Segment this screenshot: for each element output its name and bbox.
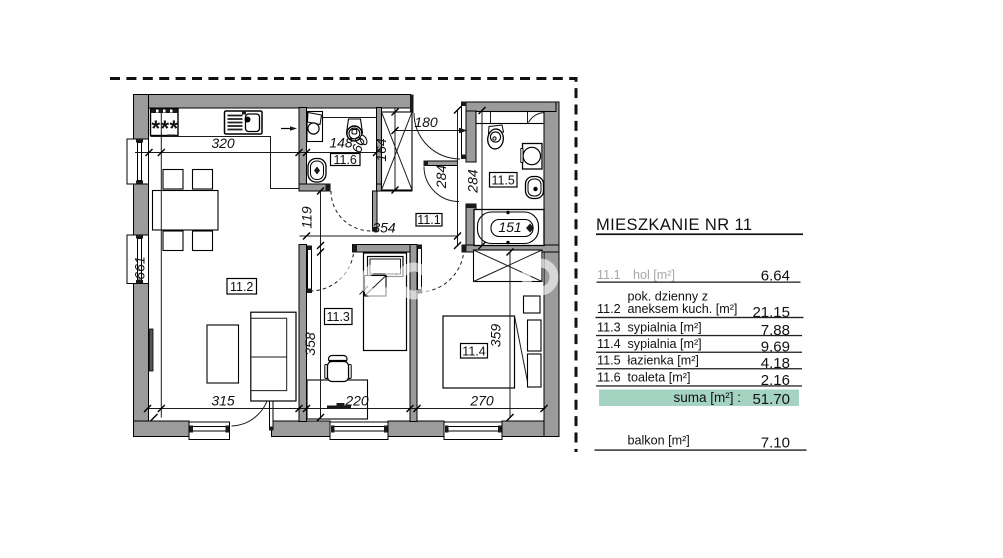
svg-text:11.5: 11.5 (491, 173, 514, 187)
svg-text:balkon [m²]: balkon [m²] (628, 434, 690, 448)
svg-text:11.6: 11.6 (333, 153, 356, 167)
svg-text:51.70: 51.70 (752, 391, 790, 408)
svg-text:151: 151 (498, 219, 521, 235)
svg-text:180: 180 (414, 114, 438, 130)
svg-text:7.88: 7.88 (761, 322, 790, 339)
svg-text:11.4: 11.4 (597, 337, 621, 351)
svg-text:119: 119 (299, 206, 315, 229)
svg-text:164: 164 (373, 138, 389, 162)
svg-text:354: 354 (372, 220, 396, 236)
svg-text:suma [m²] :: suma [m²] : (673, 390, 741, 405)
svg-text:11.1: 11.1 (597, 268, 621, 282)
svg-text:220: 220 (344, 393, 369, 409)
svg-text:11.3: 11.3 (597, 321, 621, 335)
svg-text:aneksem kuch. [m²]: aneksem kuch. [m²] (628, 302, 738, 316)
svg-text:284: 284 (465, 169, 481, 194)
svg-text:359: 359 (488, 324, 504, 348)
svg-text:11.6: 11.6 (597, 371, 621, 385)
svg-text:toaleta [m²]: toaleta [m²] (628, 371, 691, 385)
svg-text:*: * (161, 116, 170, 141)
svg-text:sypialnia [m²]: sypialnia [m²] (628, 321, 702, 335)
svg-text:11.2: 11.2 (230, 280, 253, 294)
svg-text:358: 358 (302, 332, 318, 356)
svg-text:9.69: 9.69 (761, 339, 790, 356)
svg-text:*: * (152, 116, 161, 141)
svg-text:*: * (170, 116, 179, 141)
svg-text:7.10: 7.10 (761, 435, 790, 452)
svg-text:661: 661 (132, 256, 148, 279)
svg-text:270: 270 (469, 393, 494, 409)
svg-text:11.1: 11.1 (417, 213, 440, 227)
svg-text:11.2: 11.2 (597, 302, 621, 316)
svg-text:11.4: 11.4 (462, 344, 485, 358)
svg-text:11.3: 11.3 (326, 310, 349, 324)
svg-text:MIESZKANIE NR 11: MIESZKANIE NR 11 (596, 216, 752, 234)
svg-text:11.5: 11.5 (597, 354, 621, 368)
svg-text:315: 315 (211, 393, 235, 409)
svg-text:284: 284 (433, 165, 449, 190)
svg-text:hol [m²]: hol [m²] (633, 268, 675, 282)
svg-text:21.15: 21.15 (752, 304, 790, 321)
svg-text:łazienka [m²]: łazienka [m²] (628, 354, 699, 368)
svg-text:sypialnia [m²]: sypialnia [m²] (628, 337, 702, 351)
svg-text:320: 320 (211, 135, 235, 151)
